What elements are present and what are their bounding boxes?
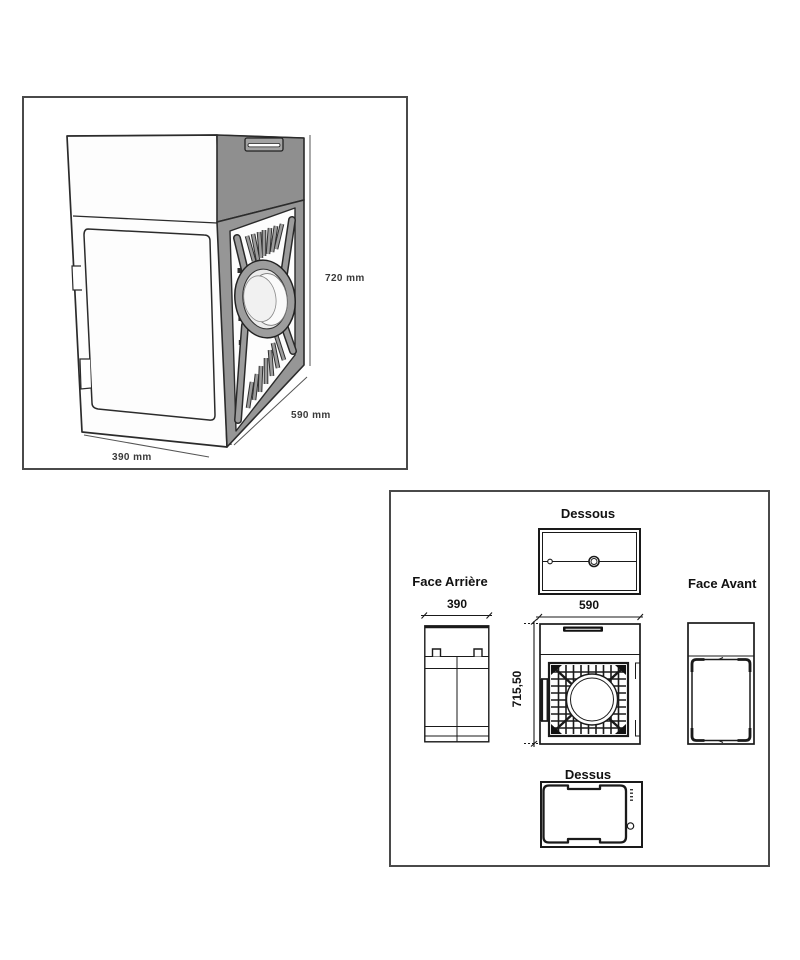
isometric-panel: 720 mm 590 mm 390 mm — [22, 96, 408, 470]
front-view-drawing — [687, 622, 755, 745]
rear-view-drawing — [424, 625, 490, 743]
page: 720 mm 590 mm 390 mm Dessous Face Arrièr… — [0, 0, 800, 960]
dim-depth-label: 590 mm — [291, 410, 331, 421]
orthographic-panel: Dessous Face Arrière Face Avant Dessus 3… — [389, 490, 770, 867]
dessus-view-drawing — [540, 781, 643, 848]
dessous-view-drawing — [538, 528, 641, 595]
handle-slot — [245, 138, 283, 151]
dim-height-label: 720 mm — [325, 273, 365, 284]
dim-width-label: 390 mm — [112, 452, 152, 463]
side-view-drawing — [539, 623, 642, 746]
